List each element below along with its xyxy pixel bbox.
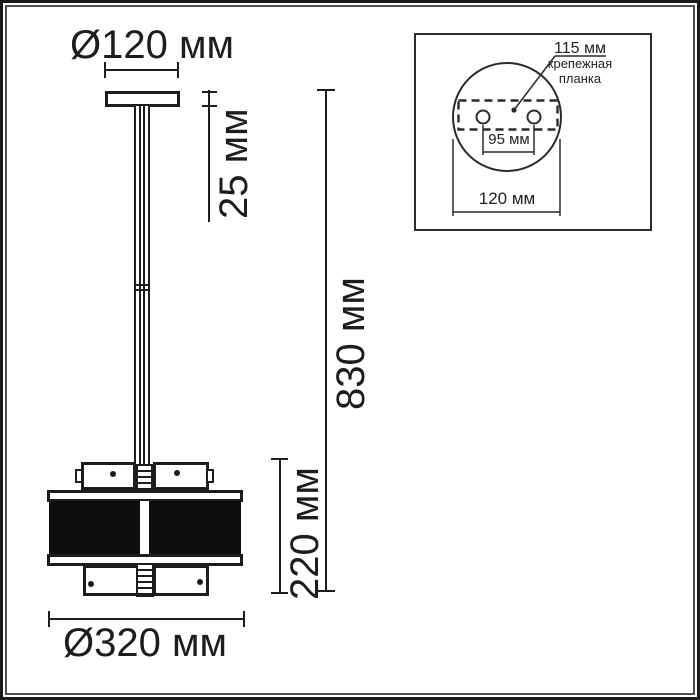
canopy-height-dim-line: [208, 90, 210, 222]
canopy-top-view-circle: [453, 63, 561, 171]
shade-height-dim-tick-top: [271, 458, 288, 460]
shade-height-dim-line: [279, 459, 281, 594]
canopy-diameter-dim-tick-right: [177, 62, 179, 78]
rod-joint-upper-line: [134, 284, 150, 286]
mounting-plate-dashed-rect: [459, 101, 558, 130]
screw-dot-bottom-left: [88, 581, 94, 587]
hanging-rod-core: [139, 106, 145, 466]
canopy-height-dim-tick-bottom: [202, 105, 217, 107]
upper-frame-left-tab: [75, 469, 83, 483]
mounting-hole-right: [528, 111, 541, 124]
upper-frame-right-tab: [206, 469, 214, 483]
shade-band-divider: [140, 501, 149, 555]
canopy-height-dim-tick-top: [202, 91, 217, 93]
shade-height-label: 220 мм: [285, 467, 325, 600]
screw-dot-bottom-right: [197, 579, 203, 585]
canopy-height-label: 25 мм: [214, 108, 254, 219]
screw-dot-top-right: [174, 470, 180, 476]
upper-frame-left-block: [81, 462, 136, 490]
overall-height-label: 830 мм: [331, 277, 371, 410]
shade-diameter-label: Ø320 мм: [47, 623, 243, 663]
shade-diameter-dim-tick-right: [243, 611, 245, 627]
base-diameter-label: 120 мм: [471, 189, 543, 209]
lamp-dimension-drawing: Ø120 мм 25 мм 830 мм 220 мм Ø320 мм: [0, 0, 700, 700]
shade-diameter-dim-line: [49, 618, 244, 620]
mounting-hole-left: [477, 111, 490, 124]
hanging-rod: [134, 106, 150, 466]
screw-dot-top-left: [110, 471, 116, 477]
canopy-diameter-label: Ø120 мм: [57, 25, 247, 65]
lower-rod-coupler: [136, 563, 154, 597]
mounting-plate-caption: крепежная планка: [547, 56, 613, 87]
overall-height-dim-tick-top: [317, 89, 335, 91]
hole-spacing-label: 95 мм: [479, 131, 539, 149]
canopy-diameter-dim-tick-left: [104, 62, 106, 78]
ceiling-canopy: [105, 91, 180, 107]
rod-joint-lower-line: [134, 289, 150, 291]
canopy-diameter-dim-line: [105, 69, 179, 71]
upper-rod-coupler: [136, 464, 153, 491]
upper-frame-right-block: [153, 462, 209, 490]
